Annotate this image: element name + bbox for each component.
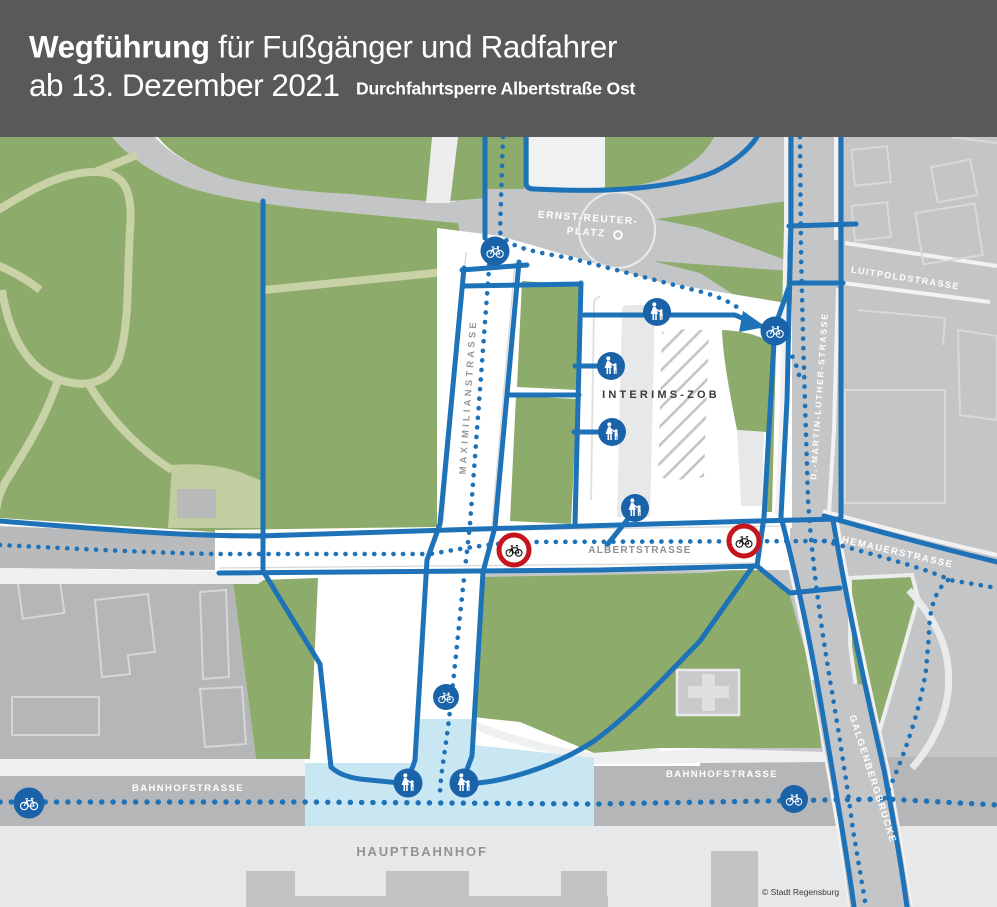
svg-text:Wegführung für Fußgänger und R: Wegführung für Fußgänger und Radfahrer [29, 30, 617, 65]
svg-text:© Stadt Regensburg: © Stadt Regensburg [762, 887, 839, 897]
svg-text:ALBERTSTRASSE: ALBERTSTRASSE [588, 545, 691, 556]
svg-text:Durchfahrtsperre Albertstraße: Durchfahrtsperre Albertstraße Ost [356, 79, 636, 99]
svg-text:BAHNHOFSTRASSE: BAHNHOFSTRASSE [132, 783, 244, 794]
svg-text:ab 13. Dezember 2021: ab 13. Dezember 2021 [29, 67, 339, 103]
svg-text:BAHNHOFSTRASSE: BAHNHOFSTRASSE [666, 769, 778, 780]
svg-text:INTERIMS-ZOB: INTERIMS-ZOB [602, 389, 720, 401]
svg-text:HAUPTBAHNHOF: HAUPTBAHNHOF [356, 844, 487, 859]
